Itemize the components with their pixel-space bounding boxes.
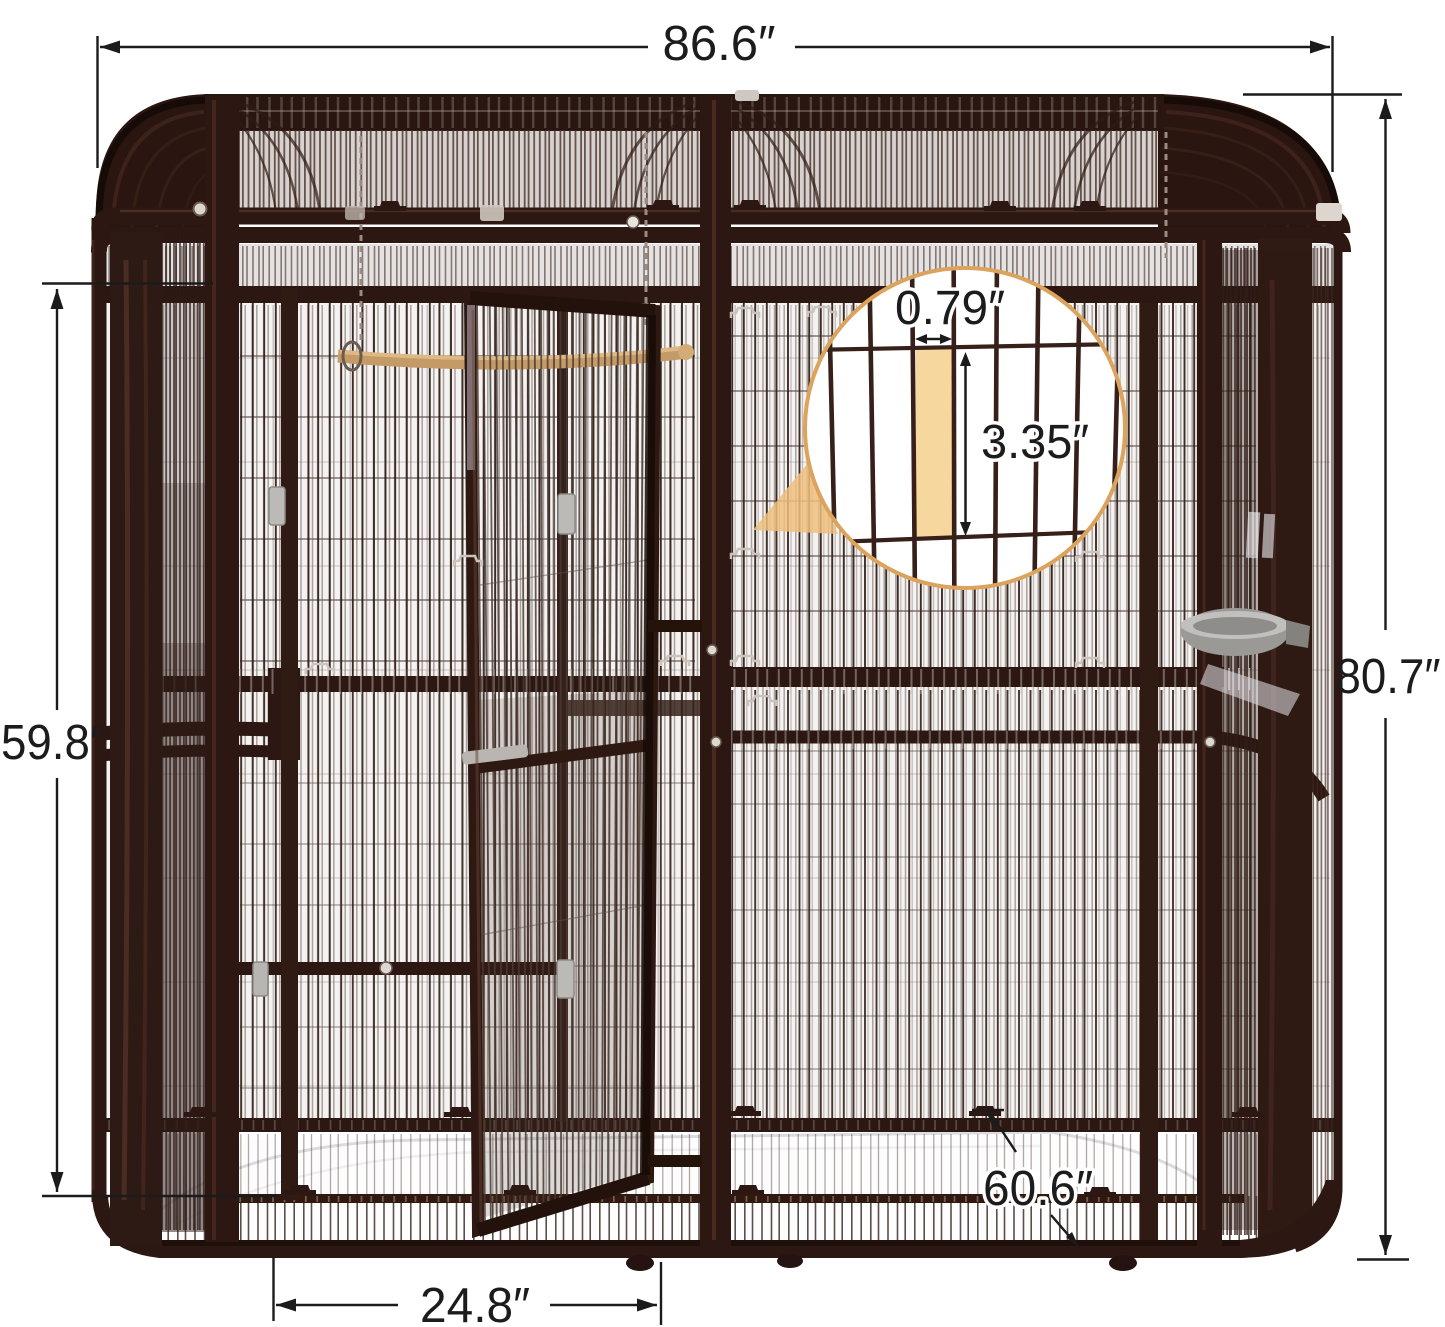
svg-text:86.6″: 86.6″ [663, 17, 776, 71]
svg-text:59.8″: 59.8″ [1, 716, 106, 770]
svg-text:0.79″: 0.79″ [895, 282, 1005, 335]
svg-text:24.8″: 24.8″ [420, 1279, 530, 1327]
svg-text:80.7″: 80.7″ [1336, 650, 1441, 704]
svg-text:60.6″: 60.6″ [983, 1162, 1093, 1216]
svg-text:3.35″: 3.35″ [981, 416, 1089, 469]
